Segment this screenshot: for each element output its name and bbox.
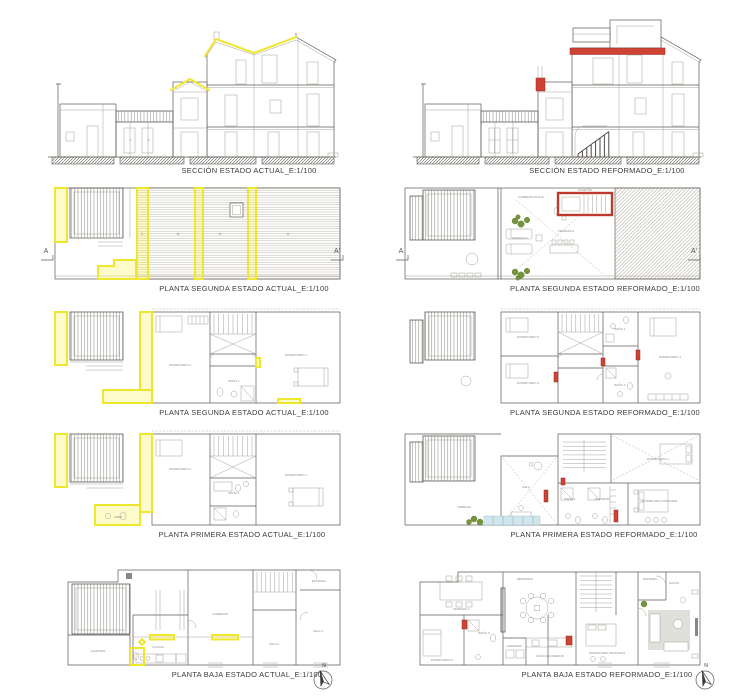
room-label: TERRAZA 1 (512, 236, 529, 240)
room-label: BAÑO 3 (478, 630, 489, 635)
room-label: DORMITORIO 1 (659, 355, 681, 359)
room-label: SALA (522, 485, 530, 489)
room-label: SALA 1 (313, 629, 323, 633)
panel-ground-actual: ALMACÉNCOCINACOMEDORSALA 2SALA 1ENTRADA (38, 560, 348, 672)
panel-roof-reformado: A A' CASETÓNCUBIERTA PLANATERRAZA 1TERRA… (398, 182, 708, 282)
section-marker-a-prime: A' (334, 248, 340, 255)
first-floor-reformado-drawing: TERRAZASALABAÑO 1VESTIDORDORMITORIO 1DOR… (398, 428, 708, 528)
room-label: BAÑO 1 (564, 496, 575, 501)
room-label: ENTRADA (643, 577, 657, 581)
caption-ground-actual: PLANTA BAJA ESTADO ACTUAL_E:1/100 (172, 670, 323, 679)
room-label: TERRAZA (457, 505, 471, 509)
room-label: DORMITORIO INVITADOS (589, 651, 625, 655)
panel-second-actual: DORMITORIO 2BAÑO 1DORMITORIO 1 (38, 306, 348, 406)
room-label: TERRAZA 2 (558, 229, 575, 233)
section-marker-a: A (44, 248, 49, 255)
panel-second-reformado: DORMITORIO 2DORMITORIO 3BAÑO 1BAÑO 2DORM… (398, 306, 708, 406)
caption-first-actual: PLANTA PRIMERA ESTADO ACTUAL_E:1/100 (159, 530, 326, 539)
room-label: BAÑO 1 (228, 490, 239, 495)
caption-roof-actual: PLANTA SEGUNDA ESTADO ACTUAL_E:1/100 (159, 284, 329, 293)
panel-first-actual: DORMITORIO 2BAÑO 1ASEODORMITORIO 1 (38, 428, 348, 528)
room-label: SALA 2 (269, 642, 279, 646)
section-marker-a-prime: A' (691, 248, 697, 255)
planter (467, 516, 484, 525)
plant (641, 601, 647, 607)
room-label: CUBIERTA PLANA (518, 195, 543, 199)
panel-first-reformado: TERRAZASALABAÑO 1VESTIDORDORMITORIO 1DOR… (398, 428, 708, 528)
room-label: COMEDOR (212, 612, 229, 616)
room-label: DORMITORIO 1 (285, 353, 307, 357)
room-label: DORMITORIO 1 (285, 473, 307, 477)
room-label: BAÑO 1 (614, 326, 625, 331)
room-label: DORMITORIO 2 (169, 467, 191, 471)
panel-ground-reformado: TERRAZA 1DORMITORIO 4BAÑO 3LAVADERODESPE… (398, 560, 708, 672)
panel-roof-actual: A A' (38, 182, 348, 282)
svg-text:N: N (322, 663, 326, 669)
second-floor-actual-drawing: DORMITORIO 2BAÑO 1DORMITORIO 1 (38, 306, 348, 406)
room-label: DORMITORIO 1 (647, 457, 669, 461)
room-label: BAÑO 1 (228, 378, 239, 383)
caption-ground-reformado: PLANTA BAJA ESTADO REFORMADO_E:1/100 (522, 670, 693, 679)
room-label: DORMITORIO 4 (431, 658, 453, 662)
room-label: SALÓN (669, 580, 679, 585)
room-label: ENTRADA (312, 579, 326, 583)
room-label: TERRAZA 1 (453, 607, 470, 611)
caption-first-reformado: PLANTA PRIMERA ESTADO REFORMADO_E:1/100 (510, 530, 697, 539)
roof-plan-actual-drawing: A A' (38, 182, 348, 282)
section-reformado-drawing (405, 8, 705, 166)
section-actual-drawing (40, 8, 340, 166)
new-stair-bulkhead (558, 193, 612, 215)
room-label: DESPENSA (517, 577, 533, 581)
room-label: DORMITORIO 2 (169, 363, 191, 367)
demolition-highlight (130, 635, 238, 665)
caption-roof-reformado: PLANTA SEGUNDA ESTADO REFORMADO_E:1/100 (510, 284, 700, 293)
room-label: VESTIDOR (594, 497, 610, 501)
panel-section-reformado (405, 8, 705, 166)
caption-second-actual: PLANTA SEGUNDA ESTADO ACTUAL_E:1/100 (159, 408, 329, 417)
svg-text:N: N (704, 663, 708, 669)
caption-section-reformado: SECCIÓN ESTADO REFORMADO_E:1/100 (529, 166, 684, 175)
section-marker-a: A (399, 248, 404, 255)
room-label: COCINA COMEDOR (536, 654, 565, 658)
water-feature (484, 516, 540, 525)
room-label: DORMITORIO PRINCIPAL (642, 499, 678, 503)
second-floor-reformado-drawing: DORMITORIO 2DORMITORIO 3BAÑO 1BAÑO 2DORM… (398, 306, 708, 406)
north-compass-icon: N (308, 661, 338, 693)
panel-section-actual (40, 8, 340, 166)
caption-section-actual: SECCIÓN ESTADO ACTUAL_E:1/100 (181, 166, 316, 175)
room-label: CASETÓN (578, 187, 593, 192)
caption-second-reformado: PLANTA SEGUNDA ESTADO REFORMADO_E:1/100 (510, 408, 700, 417)
first-floor-actual-drawing: DORMITORIO 2BAÑO 1ASEODORMITORIO 1 (38, 428, 348, 528)
room-label: COCINA (152, 645, 164, 649)
room-label: BAÑO 2 (614, 382, 625, 387)
room-label: LAVADERO (506, 644, 523, 648)
north-compass-icon: N (690, 661, 720, 693)
room-label: DORMITORIO 2 (517, 335, 539, 339)
ground-floor-reformado-drawing: TERRAZA 1DORMITORIO 4BAÑO 3LAVADERODESPE… (398, 560, 708, 672)
roof-plan-reformado-drawing: A A' CASETÓNCUBIERTA PLANATERRAZA 1TERRA… (398, 182, 708, 282)
room-label: ALMACÉN (91, 648, 106, 653)
ground-floor-actual-drawing: ALMACÉNCOCINACOMEDORSALA 2SALA 1ENTRADA (38, 560, 348, 672)
room-label: ASEO (114, 515, 123, 519)
room-label: DORMITORIO 3 (517, 381, 539, 385)
drawing-sheet: A A' A A' CASETÓNCUBIERTA PLANATERRAZA 1… (0, 0, 729, 696)
